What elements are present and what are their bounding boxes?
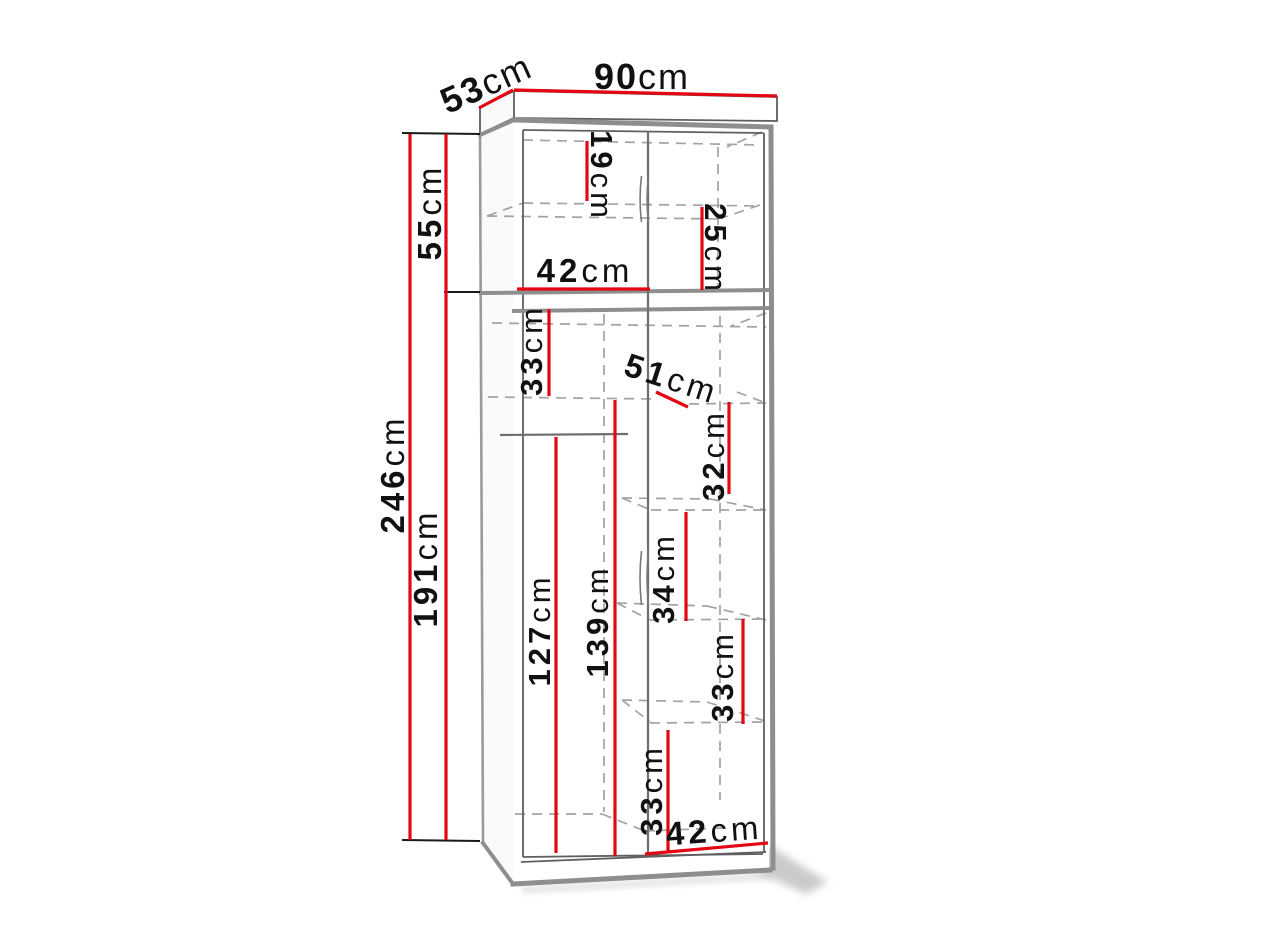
dim-label-top-width: 90cm <box>594 56 690 97</box>
dim-label-right-gap-3: 33cm <box>705 630 740 722</box>
diagram-canvas: 90cm 53cm 55cm 246cm 191cm 19cm 25cm 42c… <box>0 0 1265 949</box>
left-column-shelf <box>500 434 628 435</box>
cabinet-left-side-panel <box>480 119 514 884</box>
dim-label-right-gap-2: 34cm <box>646 532 681 624</box>
wardrobe-dimension-diagram: 90cm 53cm 55cm 246cm 191cm 19cm 25cm 42c… <box>0 0 1265 949</box>
dim-label-upper-left-height: 19cm <box>585 130 620 222</box>
dim-label-bottom-center-gap: 33cm <box>634 744 669 836</box>
dim-label-upper-section-height: 55cm <box>411 164 448 261</box>
front-right-edge <box>771 127 773 868</box>
dim-label-upper-right-height: 25cm <box>699 203 734 295</box>
dim-label-upper-shelf-width: 42cm <box>537 252 634 289</box>
dim-label-total-height: 246cm <box>374 414 411 533</box>
dim-label-left-shelf-gap: 33cm <box>514 304 549 396</box>
dim-label-lower-section-height: 191cm <box>407 508 444 627</box>
dim-label-left-hanging-height: 127cm <box>522 573 557 686</box>
dim-label-right-gap-1: 32cm <box>696 409 731 501</box>
dim-label-center-hanging-height: 139cm <box>580 564 615 677</box>
dim-label-bottom-shelf-width: 42cm <box>664 808 763 852</box>
